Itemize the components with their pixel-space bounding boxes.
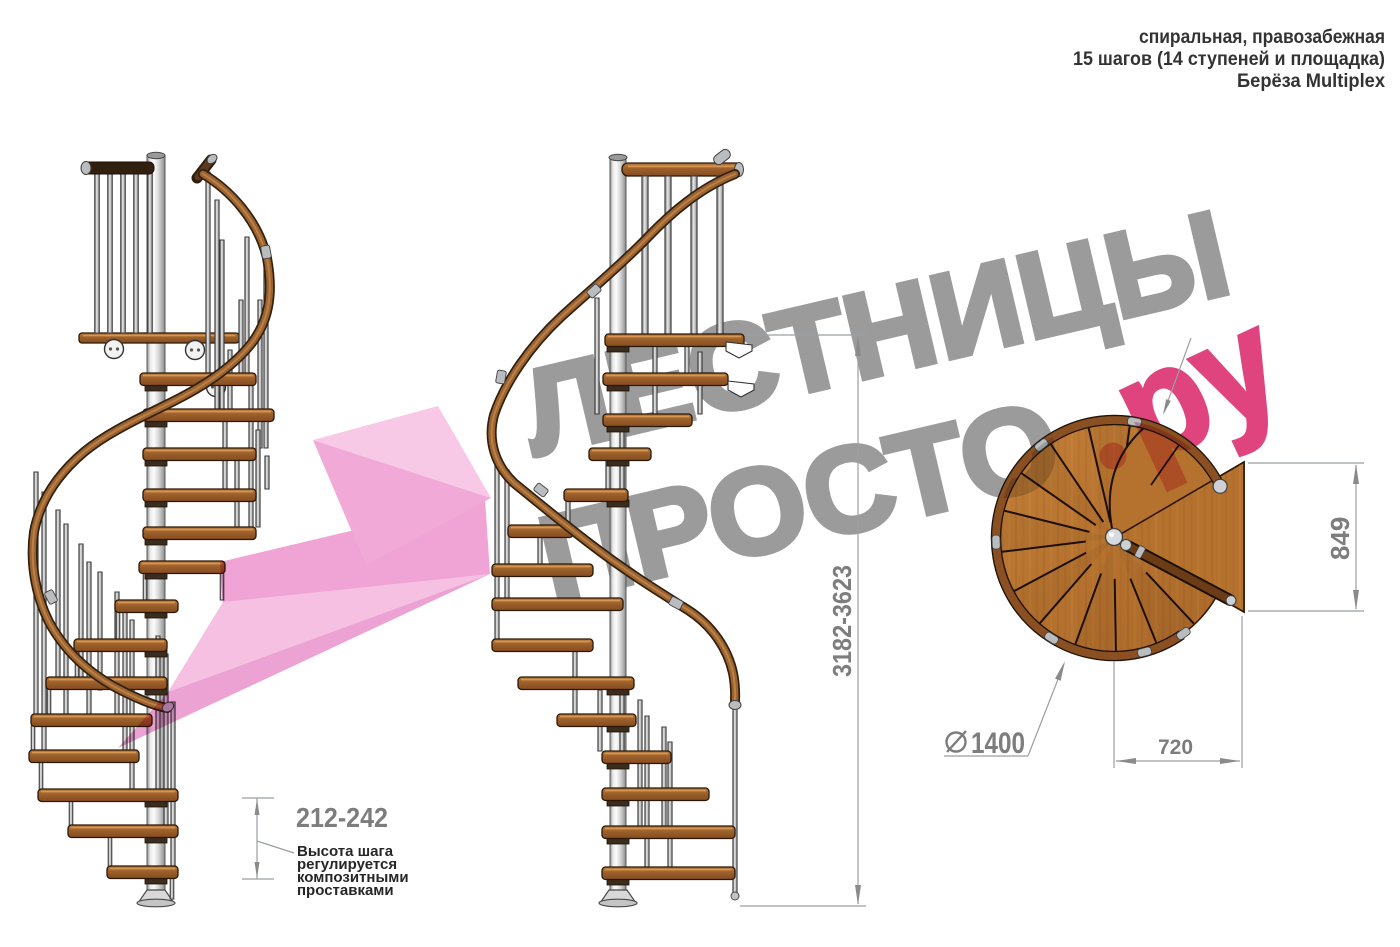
svg-text:спиральная, правозабежная: спиральная, правозабежная bbox=[1139, 27, 1385, 48]
svg-text:15 шагов (14 ступеней и площад: 15 шагов (14 ступеней и площадка) bbox=[1073, 49, 1385, 70]
svg-text:1400: 1400 bbox=[971, 727, 1025, 760]
svg-text:Берёза Multiplex: Берёза Multiplex bbox=[1237, 71, 1385, 92]
svg-text:849: 849 bbox=[1325, 517, 1355, 560]
svg-text:212-242: 212-242 bbox=[296, 802, 388, 833]
svg-text:720: 720 bbox=[1158, 736, 1193, 759]
svg-text:проставками: проставками bbox=[297, 882, 394, 899]
svg-text:3182-3623: 3182-3623 bbox=[827, 565, 857, 677]
